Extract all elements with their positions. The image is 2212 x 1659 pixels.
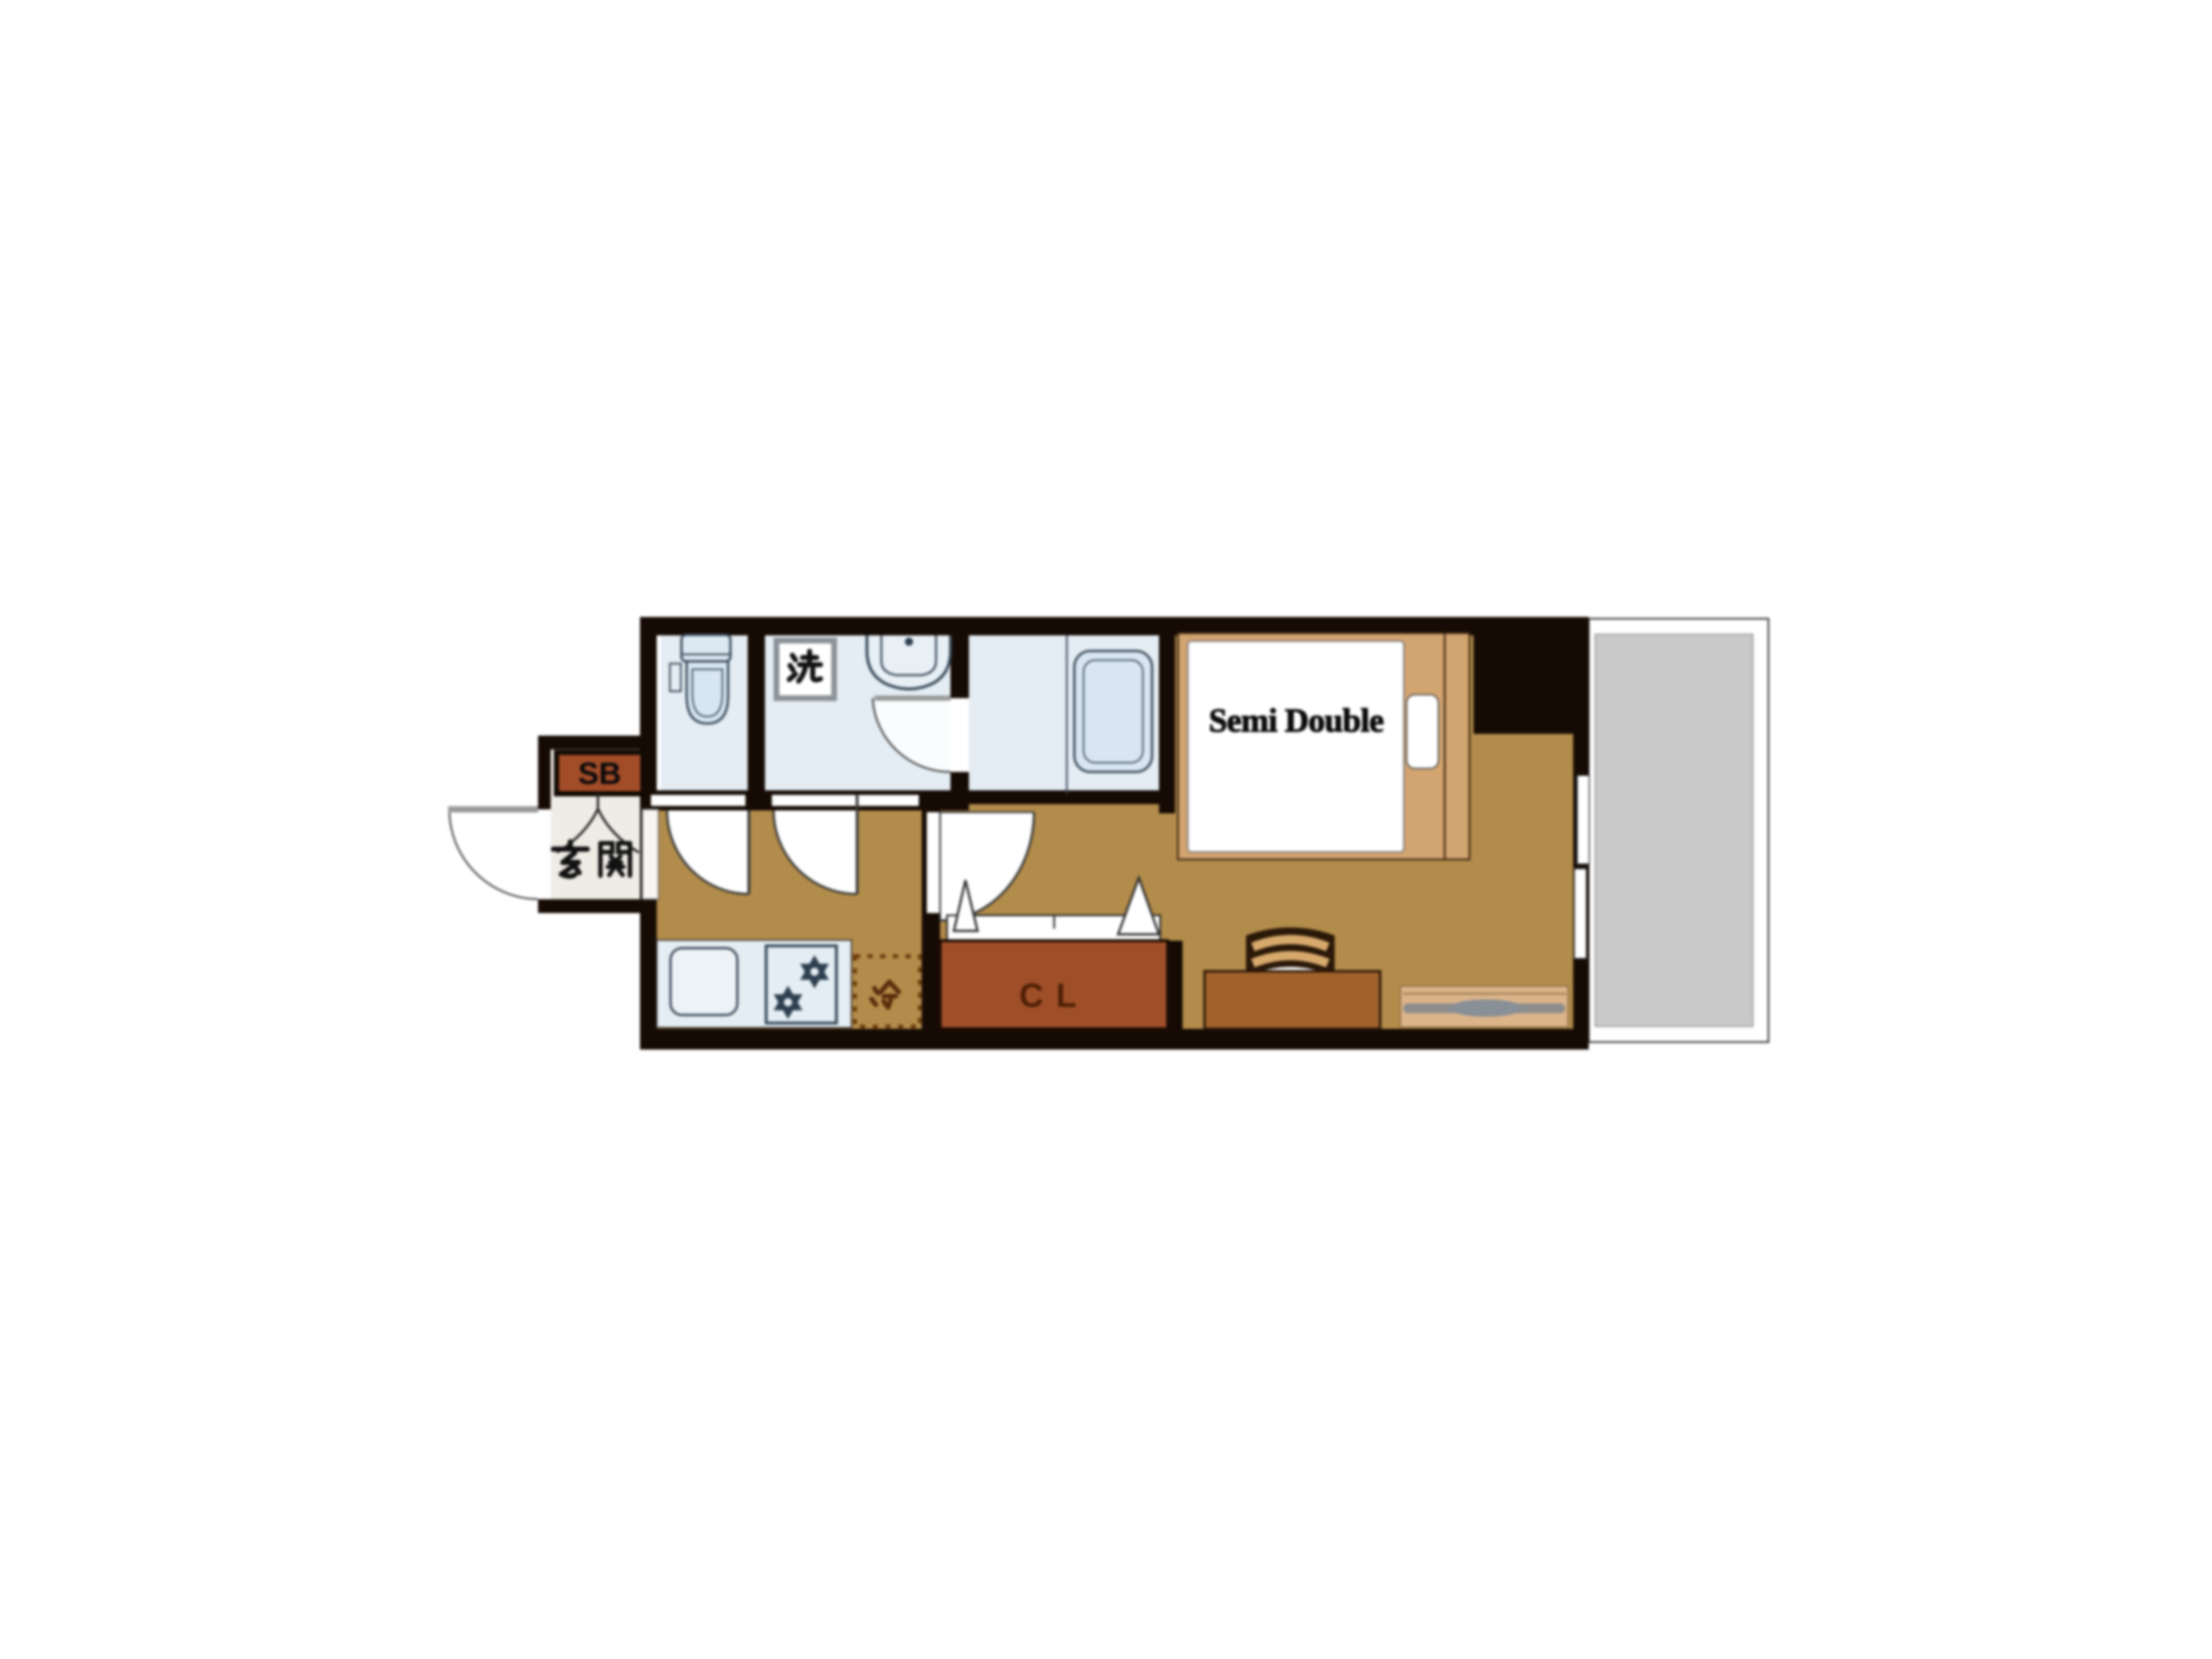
svg-text:SB: SB bbox=[578, 756, 621, 791]
svg-text:Semi Double: Semi Double bbox=[1209, 702, 1383, 739]
svg-text:CL: CL bbox=[1019, 977, 1089, 1014]
